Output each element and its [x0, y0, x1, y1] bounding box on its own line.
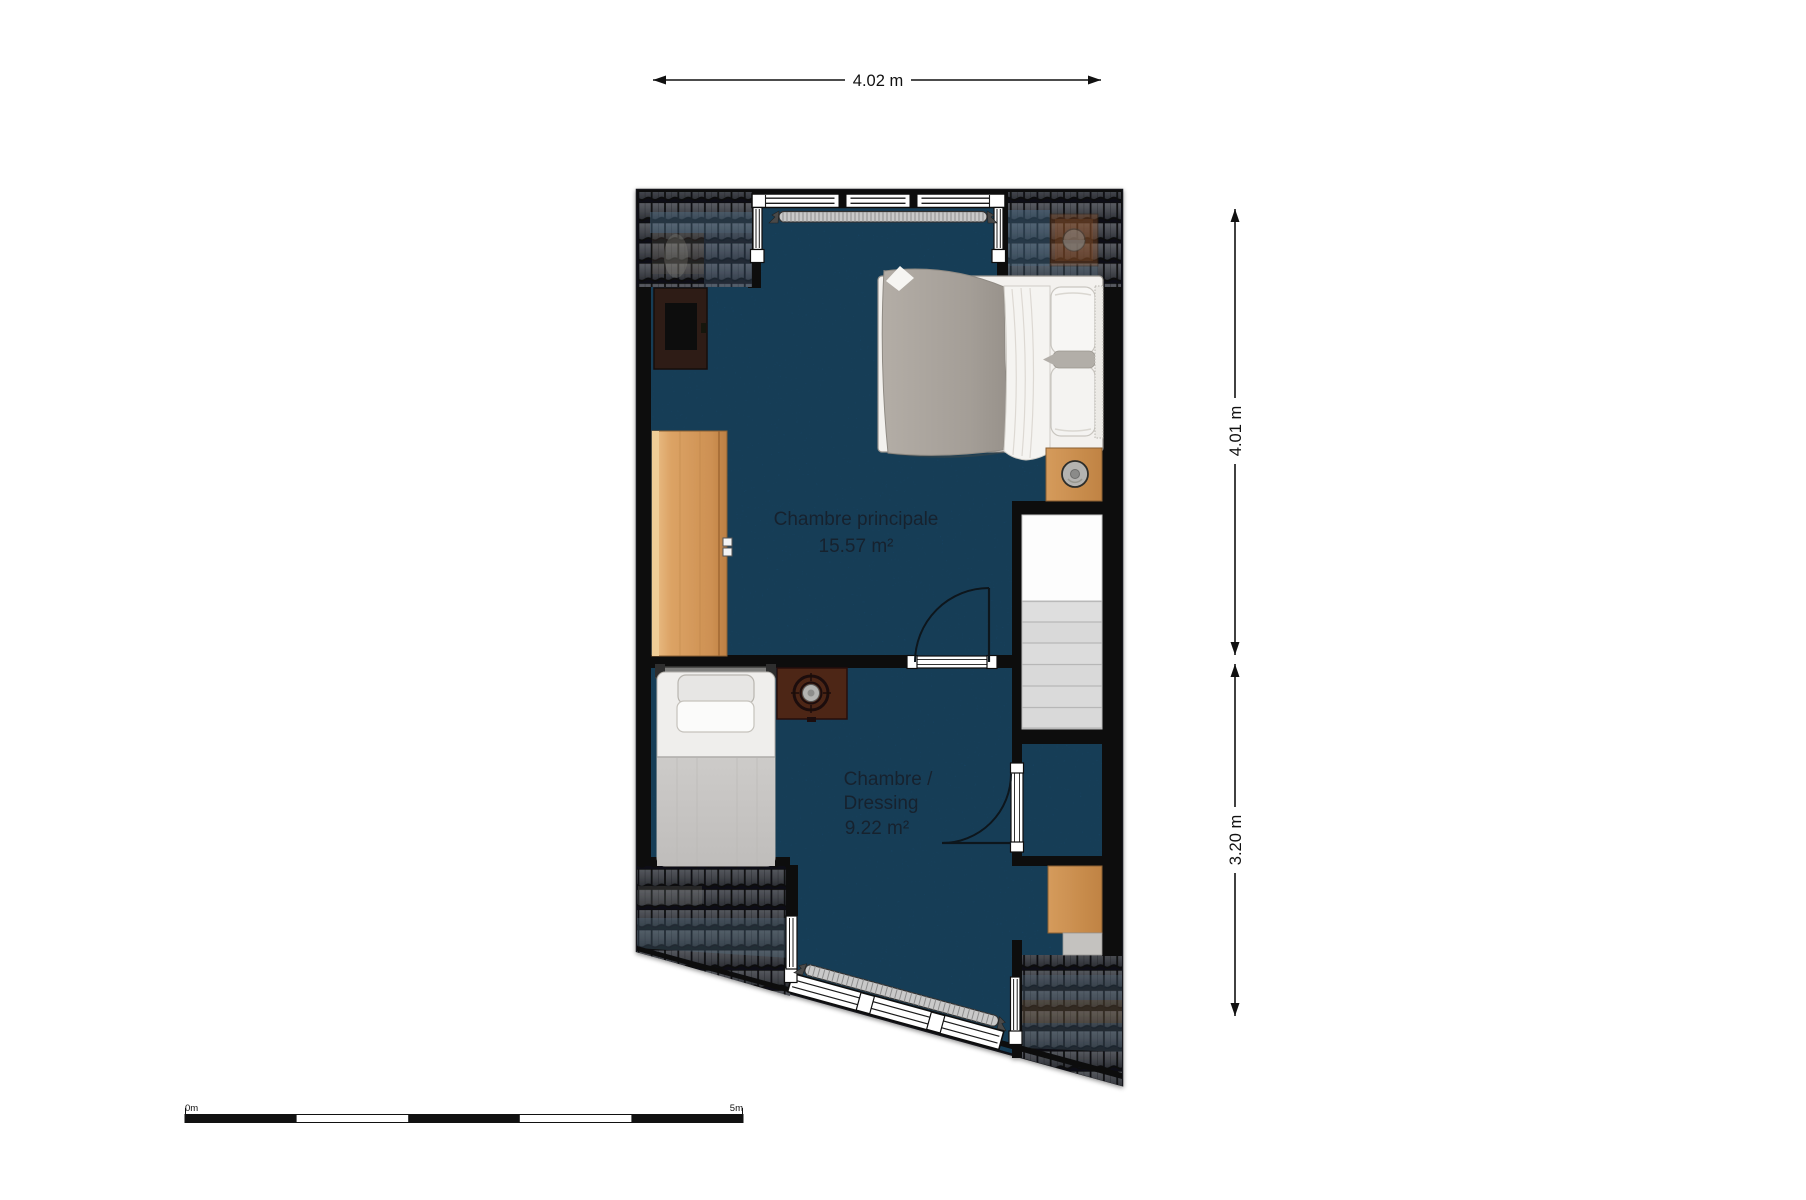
- svg-text:Chambre principale: Chambre principale: [774, 509, 939, 530]
- svg-text:4.02 m: 4.02 m: [853, 72, 903, 90]
- svg-text:Dressing: Dressing: [844, 793, 919, 814]
- svg-text:3.20 m: 3.20 m: [1227, 815, 1245, 865]
- svg-text:0m: 0m: [185, 1103, 198, 1114]
- svg-text:9.22 m²: 9.22 m²: [845, 818, 909, 839]
- svg-text:15.57 m²: 15.57 m²: [819, 536, 894, 557]
- svg-text:4.01 m: 4.01 m: [1227, 406, 1245, 456]
- svg-text:5m: 5m: [730, 1103, 743, 1114]
- svg-text:Chambre /: Chambre /: [844, 769, 933, 790]
